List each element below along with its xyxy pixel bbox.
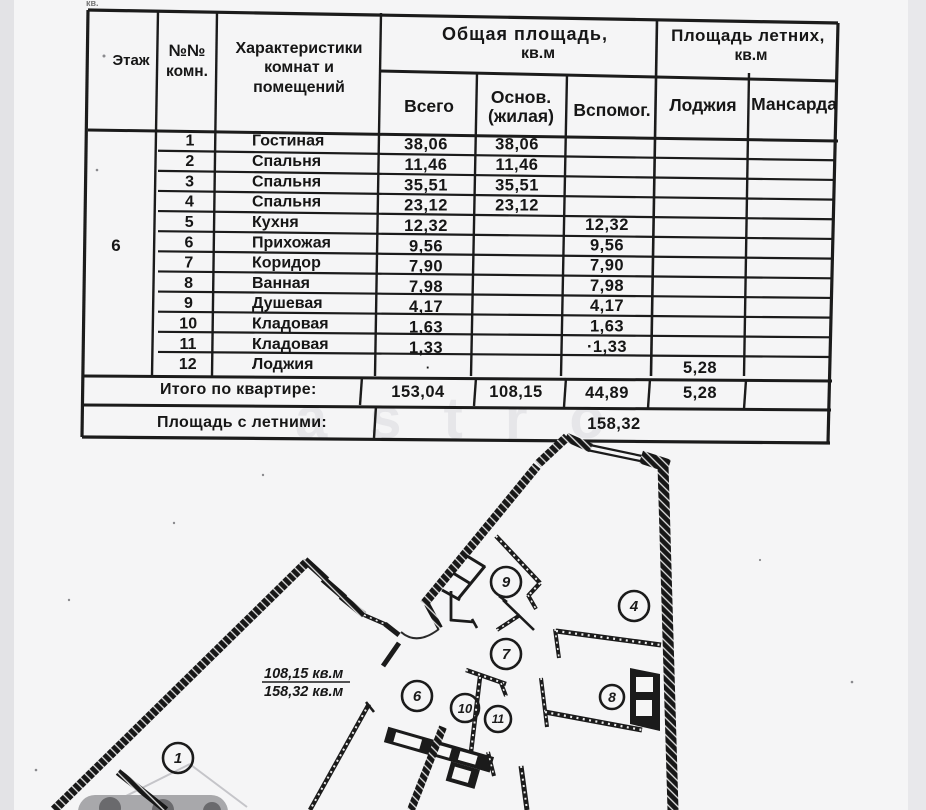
svg-text:Кладовая: Кладовая [252, 316, 329, 333]
svg-text:Всего: Всего [404, 96, 454, 116]
svg-text:Этаж: Этаж [113, 52, 150, 69]
svg-text:1,63: 1,63 [409, 319, 443, 337]
svg-text:Ванная: Ванная [252, 275, 310, 292]
svg-text:10: 10 [458, 701, 473, 716]
svg-text:153,04: 153,04 [391, 383, 445, 401]
svg-text:Площадь с летними:: Площадь с летними: [157, 414, 327, 431]
svg-text:Лоджия: Лоджия [252, 356, 313, 373]
svg-text:Лоджия: Лоджия [669, 95, 736, 115]
svg-text:4: 4 [185, 194, 194, 211]
svg-text:35,51: 35,51 [495, 176, 539, 194]
svg-text:38,06: 38,06 [404, 136, 448, 154]
svg-text:7,98: 7,98 [409, 278, 443, 296]
svg-text:5,28: 5,28 [683, 384, 717, 402]
svg-text:Площадь летних,: Площадь летних, [671, 26, 825, 45]
svg-text:12,32: 12,32 [585, 216, 629, 234]
svg-text:1,63: 1,63 [590, 318, 624, 336]
svg-text:8: 8 [608, 689, 616, 705]
svg-text:Коридор: Коридор [252, 255, 321, 272]
svg-text:11,46: 11,46 [405, 156, 448, 174]
svg-text:23,12: 23,12 [495, 197, 539, 215]
svg-text:7: 7 [502, 646, 511, 663]
svg-text:Кладовая: Кладовая [252, 336, 329, 353]
svg-text:Итого по квартире:: Итого по квартире: [160, 381, 317, 398]
svg-text:44,89: 44,89 [585, 384, 629, 402]
svg-text:Характеристики: Характеристики [235, 40, 362, 57]
svg-text:4,17: 4,17 [590, 297, 624, 315]
svg-text:комн.: комн. [166, 63, 208, 80]
svg-text:6: 6 [111, 236, 120, 255]
svg-text:помещений: помещений [253, 79, 345, 96]
svg-text:3: 3 [185, 173, 194, 190]
svg-text:35,51: 35,51 [404, 176, 448, 194]
svg-text:комнат и: комнат и [264, 59, 334, 76]
svg-text:11,46: 11,46 [496, 156, 539, 174]
svg-text:№№: №№ [169, 42, 206, 60]
svg-text:1,33: 1,33 [409, 339, 443, 357]
svg-text:9: 9 [184, 295, 193, 312]
svg-text:4: 4 [629, 598, 639, 615]
svg-text:108,15 кв.м: 108,15 кв.м [264, 666, 344, 682]
svg-text:8: 8 [184, 275, 193, 292]
svg-text:Кухня: Кухня [252, 214, 299, 231]
svg-text:7,98: 7,98 [590, 277, 624, 295]
svg-text:23,12: 23,12 [404, 197, 448, 215]
svg-text:(жилая): (жилая) [488, 106, 554, 126]
svg-text:10: 10 [179, 316, 197, 333]
svg-text:9: 9 [502, 574, 511, 591]
svg-text:Вспомог.: Вспомог. [573, 100, 650, 120]
svg-text:кв.м: кв.м [734, 47, 767, 64]
svg-text:1: 1 [186, 133, 195, 150]
svg-text:Основ.: Основ. [491, 87, 551, 107]
svg-text:5: 5 [185, 214, 194, 231]
svg-text:158,32 кв.м: 158,32 кв.м [264, 684, 344, 700]
svg-text:9,56: 9,56 [409, 237, 443, 255]
svg-text:108,15: 108,15 [489, 383, 542, 401]
svg-text:9,56: 9,56 [590, 236, 624, 254]
svg-text:5,28: 5,28 [683, 359, 717, 377]
svg-text:6: 6 [413, 688, 422, 705]
svg-text:12: 12 [179, 356, 197, 373]
svg-text:11: 11 [492, 712, 505, 726]
svg-text:Спальня: Спальня [252, 173, 321, 190]
svg-text:Мансарда: Мансарда [751, 94, 837, 114]
svg-text:6: 6 [185, 234, 194, 251]
svg-text:2: 2 [185, 153, 194, 170]
svg-text:7: 7 [184, 255, 193, 272]
svg-text:Душевая: Душевая [252, 295, 323, 312]
svg-text:12,32: 12,32 [404, 217, 448, 235]
svg-text:Гостиная: Гостиная [252, 133, 324, 150]
svg-text:38,06: 38,06 [495, 136, 539, 154]
svg-text:4,17: 4,17 [409, 298, 443, 316]
svg-text:кв.: кв. [86, 0, 99, 8]
svg-text:11: 11 [180, 336, 197, 353]
svg-text:Прихожая: Прихожая [252, 234, 331, 251]
svg-text:Общая площадь,: Общая площадь, [442, 24, 608, 44]
svg-text:Спальня: Спальня [252, 194, 321, 211]
svg-text:7,90: 7,90 [409, 258, 443, 276]
svg-text:1: 1 [174, 750, 182, 767]
svg-text:·: · [426, 360, 430, 375]
svg-text:158,32: 158,32 [587, 415, 640, 433]
svg-text:7,90: 7,90 [590, 257, 624, 275]
svg-text:кв.м: кв.м [521, 45, 555, 62]
svg-text:·1,33: ·1,33 [587, 338, 627, 356]
svg-text:Спальня: Спальня [252, 153, 321, 170]
